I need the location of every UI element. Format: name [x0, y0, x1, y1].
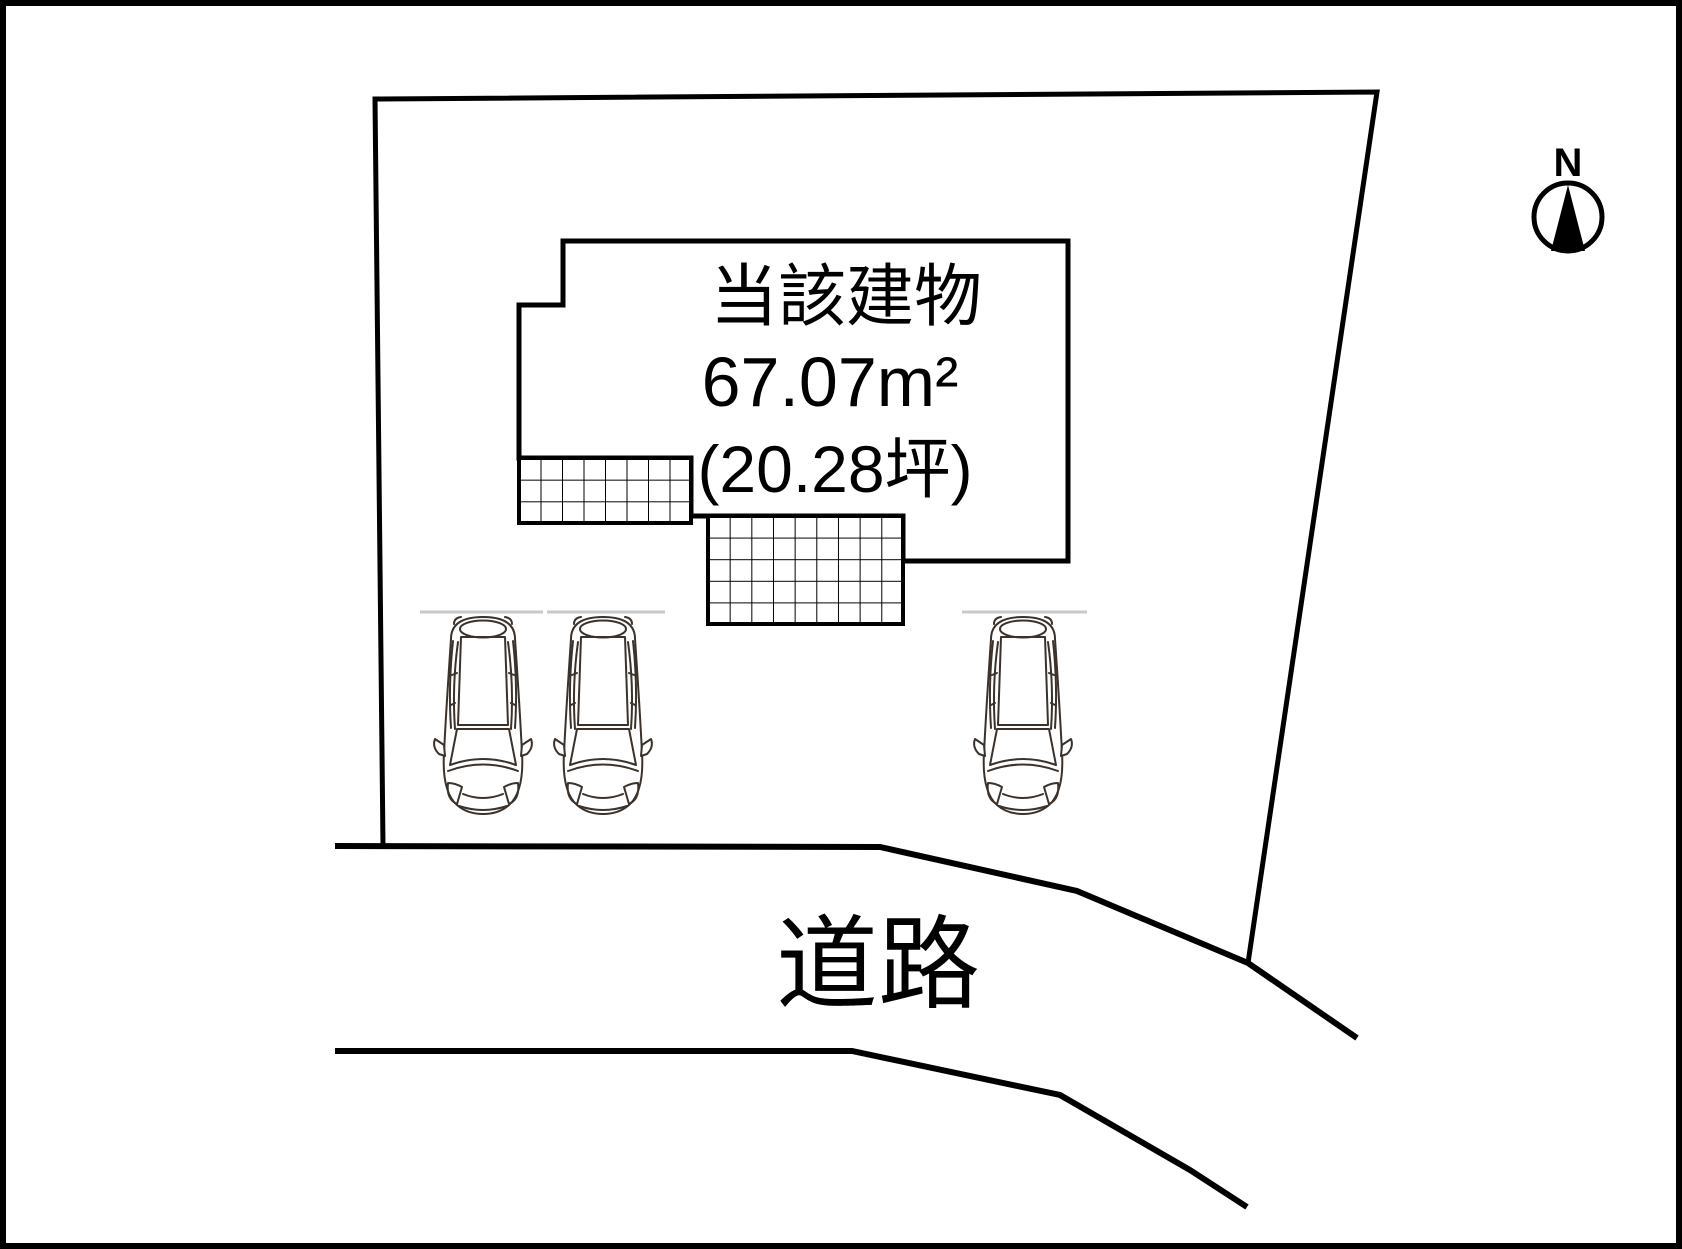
compass-n-label: N	[1554, 141, 1583, 185]
building-name-label: 当該建物	[710, 259, 982, 335]
building-area-m2-label: 67.07m²	[702, 343, 959, 421]
site-plan-page: 当該建物 67.07m² (20.28坪) 道路 N	[0, 0, 1682, 1249]
building-area-tsubo-label: (20.28坪)	[697, 432, 972, 506]
road-label: 道路	[776, 908, 980, 1022]
site-plan-canvas: 当該建物 67.07m² (20.28坪) 道路 N	[0, 0, 1682, 1249]
hatched-terrace-area-right	[708, 516, 903, 624]
hatched-terrace-area-left	[519, 458, 691, 523]
